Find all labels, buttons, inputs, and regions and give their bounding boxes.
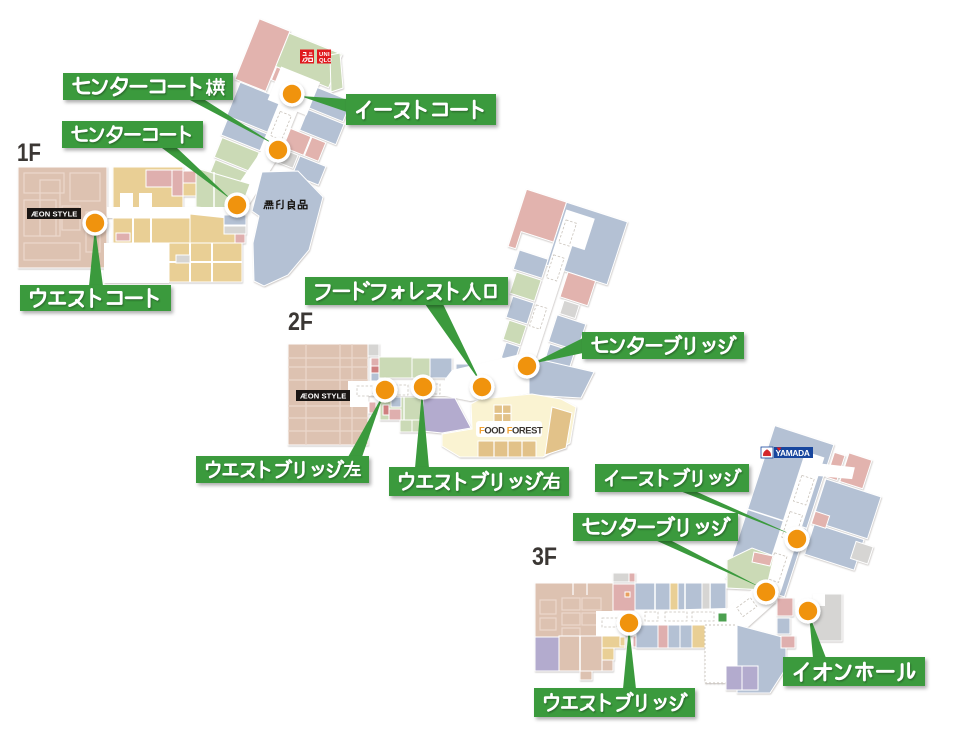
svg-text:ÆON STYLE: ÆON STYLE xyxy=(300,392,346,401)
svg-text:3F: 3F xyxy=(532,543,557,571)
svg-text:QLO: QLO xyxy=(319,58,332,64)
svg-text:ÆON STYLE: ÆON STYLE xyxy=(31,210,77,219)
svg-text:2F: 2F xyxy=(288,308,313,336)
svg-text:UNI: UNI xyxy=(319,52,330,58)
svg-text:1F: 1F xyxy=(17,139,41,167)
svg-text:YAMADA: YAMADA xyxy=(776,448,810,458)
svg-text:FOOD FOREST: FOOD FOREST xyxy=(479,425,543,436)
